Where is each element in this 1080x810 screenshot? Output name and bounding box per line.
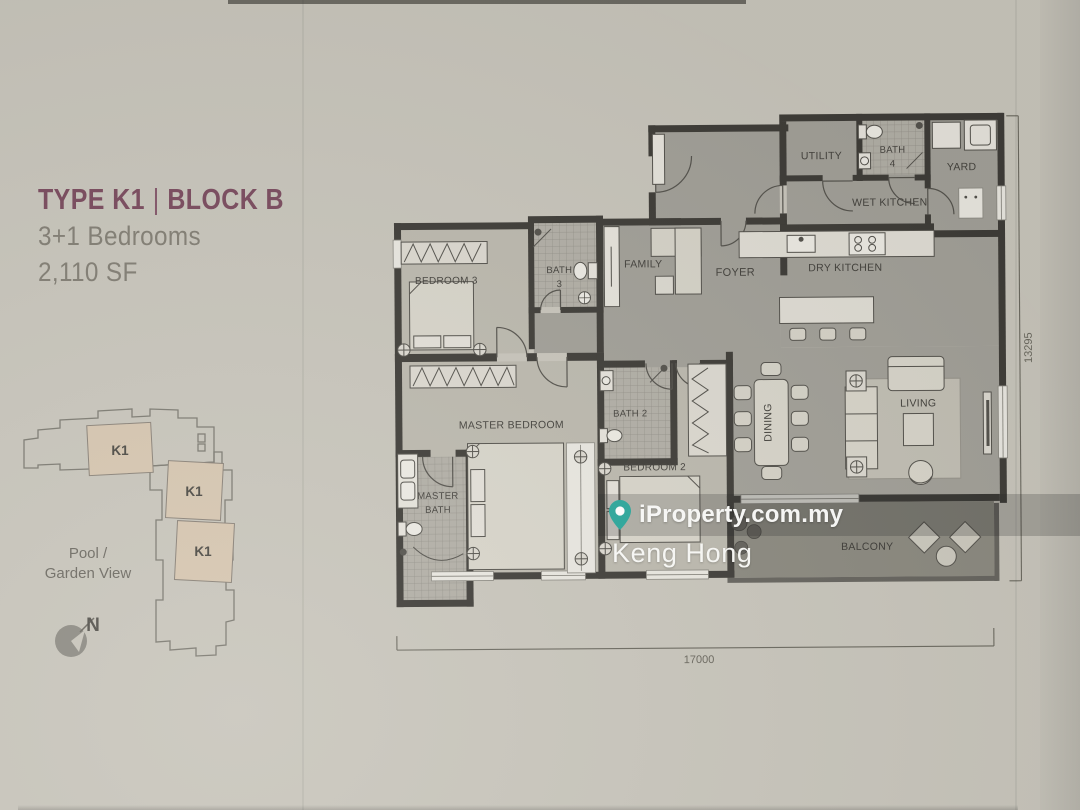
dimension-height: 13295 [1023,332,1035,363]
paper-edge-shade [1040,0,1080,810]
room-label-yard: YARD [947,161,977,173]
room-label-master-bath-1: MASTER [417,491,458,502]
watermark-agent: Keng Hong [612,538,753,569]
room-label-utility: UTILITY [801,150,842,162]
photo-edge-bottom [18,805,1018,810]
dimension-width: 17000 [684,654,715,666]
site-plan: K1 K1 K1 Pool / Garden View [24,409,234,656]
room-label-bath4-2: 4 [890,159,896,170]
room-label-wet-kitchen: WET KITCHEN [852,196,928,209]
room-label-dry-kitchen: DRY KITCHEN [808,262,882,275]
watermark-brand: iProperty.com.my [639,501,843,529]
brochure-photo: TYPE K1|BLOCK B 3+1 Bedrooms 2,110 SF [0,0,1080,810]
north-indicator: N [55,615,100,657]
floorplan-drawing: FOYER UTILITY BATH 4 YARD WET KITCHEN DR… [0,0,1080,810]
room-label-bedroom3: BEDROOM 3 [415,276,478,287]
room-label-master-bath-2: BATH [425,505,451,516]
room-label-living: LIVING [900,397,936,409]
view-label-line1: Pool / [69,545,108,562]
photo-edge-top [228,0,746,4]
room-label-bath4-1: BATH [880,145,906,156]
room-label-bath2: BATH 2 [613,408,647,419]
unit-label-2: K1 [185,484,203,499]
paper-crease-right [1015,0,1017,810]
room-label-balcony: BALCONY [841,541,893,553]
room-label-dining: DINING [762,403,774,442]
unit-label-1: K1 [111,443,129,458]
room-label-family: FAMILY [624,258,662,270]
room-label-bath3-1: BATH [546,265,572,276]
location-pin-icon [608,499,632,531]
view-label-line2: Garden View [45,565,132,582]
unit-label-3: K1 [194,544,212,559]
watermark: iProperty.com.my [608,494,843,536]
room-label-foyer: FOYER [716,267,755,279]
room-label-master-bedroom: MASTER BEDROOM [459,419,564,432]
room-label-bedroom2: BEDROOM 2 [623,462,686,473]
floor-plan: FOYER UTILITY BATH 4 YARD WET KITCHEN DR… [392,113,1037,668]
north-label: N [86,615,100,636]
paper-crease-left [302,0,304,810]
room-label-bath3-2: 3 [557,279,563,290]
